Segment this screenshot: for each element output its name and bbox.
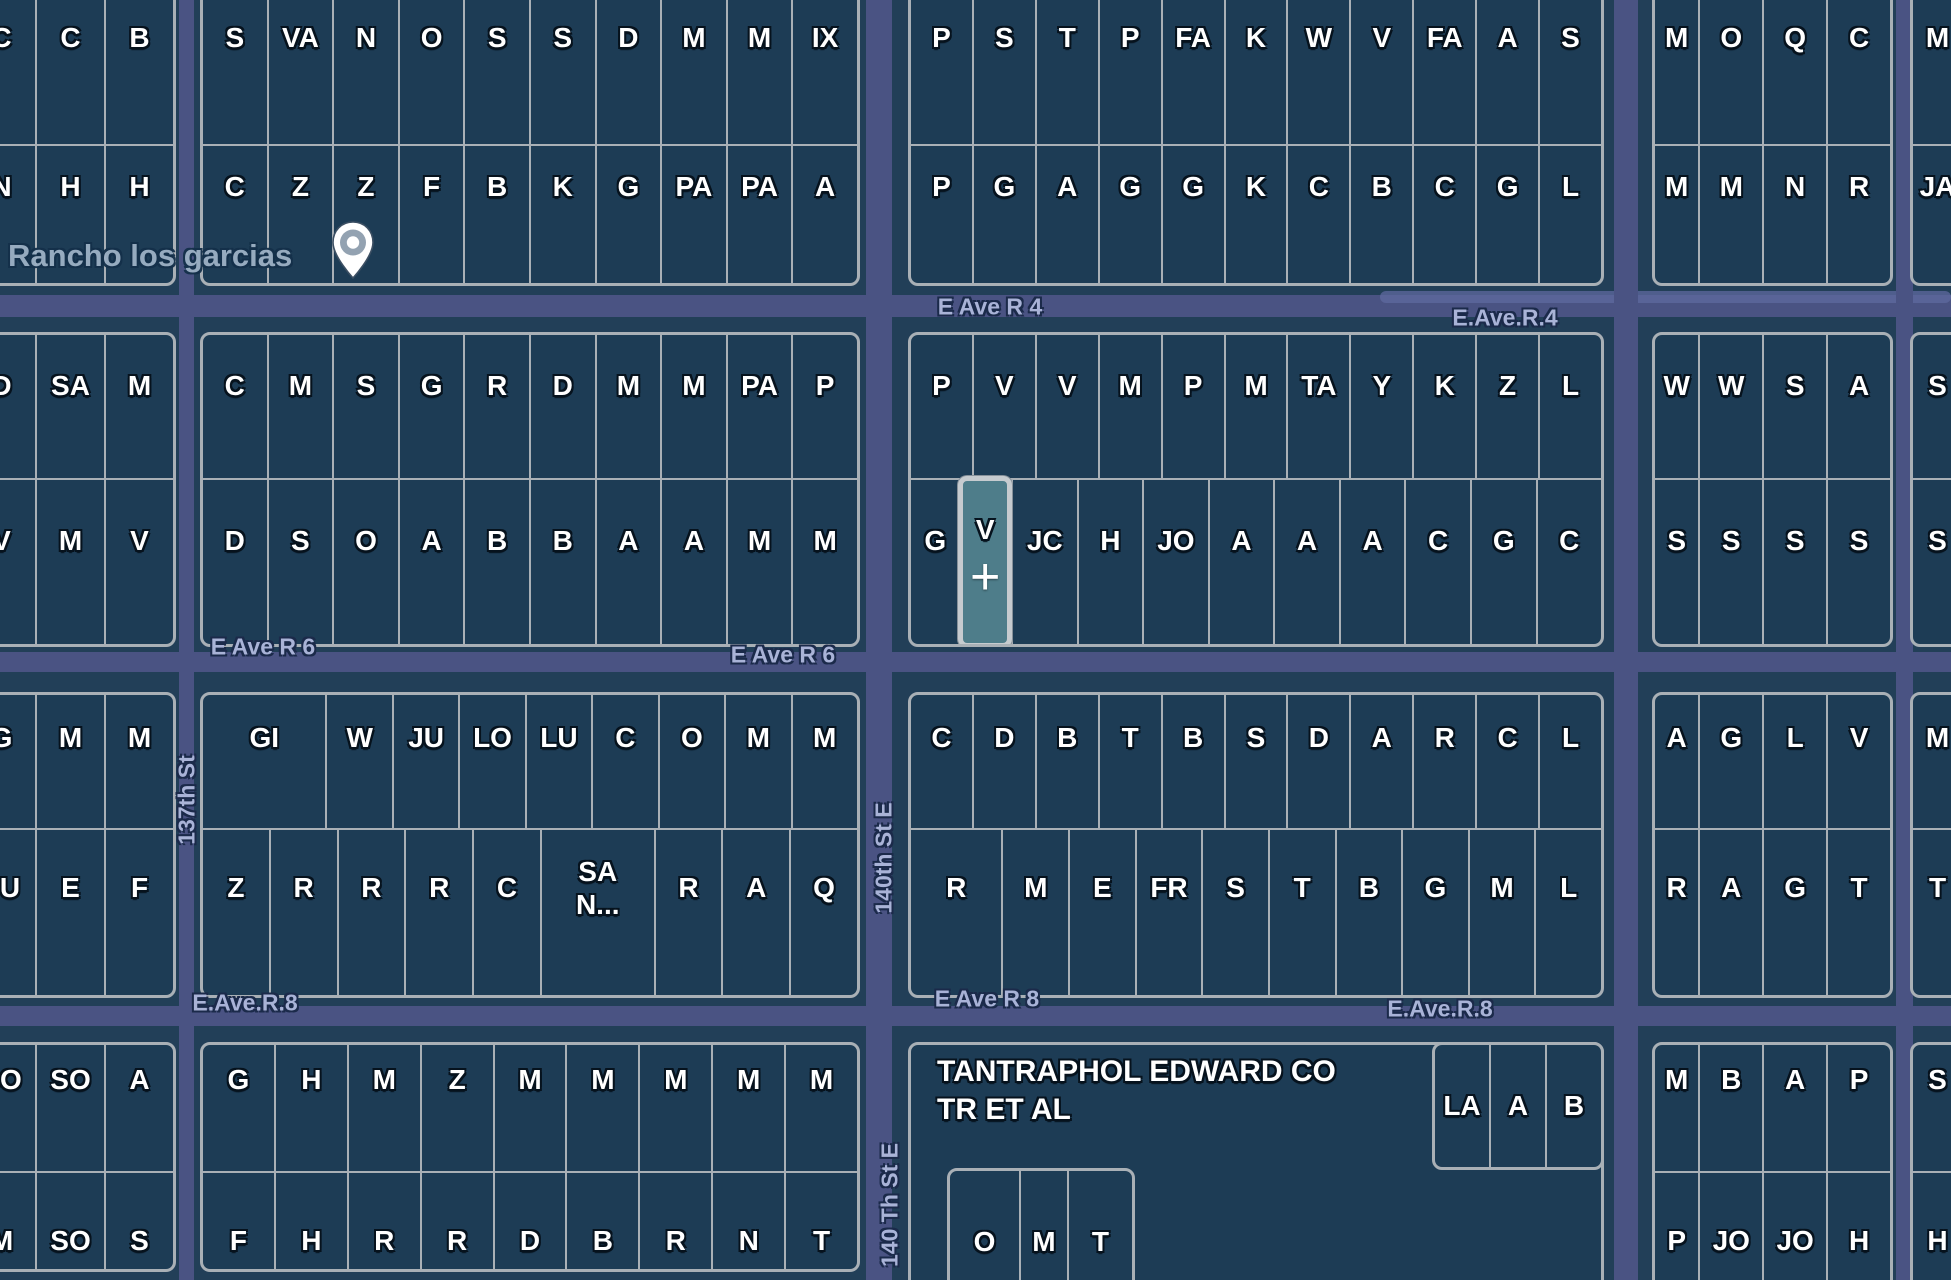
parcel[interactable]: M	[791, 695, 857, 828]
parcel[interactable]: Z	[203, 830, 269, 995]
parcel[interactable]: L	[1534, 830, 1601, 995]
parcel[interactable]: C	[0, 0, 35, 144]
parcel[interactable]: T	[784, 1173, 857, 1269]
parcel-owner-initials: A	[1721, 872, 1741, 904]
parcel[interactable]: M	[1655, 1045, 1698, 1171]
parcel[interactable]: M	[660, 0, 726, 144]
parcel[interactable]: M	[784, 1045, 857, 1171]
parcel[interactable]: F	[203, 1173, 274, 1269]
parcel[interactable]: M	[565, 1045, 638, 1171]
parcel[interactable]: A	[398, 480, 464, 644]
place-label: Rancho los garcias	[8, 238, 320, 274]
parcel[interactable]: R	[1412, 695, 1475, 828]
parcel[interactable]: H	[1913, 1173, 1951, 1280]
parcel-owner-initials: O	[681, 722, 703, 754]
parcel[interactable]: S	[104, 1173, 173, 1269]
parcel[interactable]: W	[1698, 335, 1762, 478]
parcel[interactable]: E	[1068, 830, 1135, 995]
parcel[interactable]: M	[711, 1045, 784, 1171]
parcel[interactable]: M	[1468, 830, 1535, 995]
parcel[interactable]: V	[1826, 695, 1890, 828]
parcel[interactable]: M	[35, 480, 104, 644]
parcel[interactable]: M	[726, 0, 792, 144]
parcel[interactable]: H	[1077, 480, 1143, 644]
parcel-owner-initials: M	[813, 525, 836, 557]
parcel-owner-initials: M	[1926, 722, 1949, 754]
parcel[interactable]: Y	[1349, 335, 1412, 478]
parcel-owner-initials: M	[1032, 1226, 1055, 1258]
parcel-owner-initials: B	[1183, 722, 1203, 754]
parcel[interactable]: R	[654, 830, 722, 995]
parcel-owner-initials: SO	[50, 1225, 90, 1257]
parcel-owner-initials: C	[60, 22, 80, 54]
parcel[interactable]: O	[658, 695, 724, 828]
parcel[interactable]: F	[104, 830, 173, 995]
parcel-block: WWSASSSS	[1652, 332, 1893, 647]
parcel[interactable]: C	[1404, 480, 1470, 644]
parcel[interactable]: C	[203, 335, 267, 478]
parcel-owner-initials: FA	[1427, 22, 1463, 54]
parcel[interactable]: B	[1335, 830, 1402, 995]
parcel[interactable]: S	[1762, 480, 1826, 644]
parcel[interactable]: M	[1019, 1171, 1067, 1280]
road-name-label: E Ave R 6	[731, 642, 835, 669]
parcel-owner-initials: P	[816, 370, 835, 402]
parcel-owner-initials: M	[289, 370, 312, 402]
parcel[interactable]: M	[1098, 335, 1161, 478]
parcel[interactable]: T	[1035, 0, 1098, 144]
parcel-row: ZRRRCSA N...RAQ	[203, 828, 857, 995]
parcel[interactable]: C	[591, 695, 657, 828]
parcel[interactable]: B	[463, 480, 529, 644]
parcel[interactable]: M	[104, 695, 173, 828]
parcel-owner-initials: G	[1119, 171, 1141, 203]
parcel-owner-initials: M	[518, 1064, 541, 1096]
parcel[interactable]: C	[1475, 695, 1538, 828]
road-name-label: E.Ave.R.8	[192, 990, 297, 1017]
parcel[interactable]: G	[1401, 830, 1468, 995]
parcel[interactable]: GI	[203, 695, 325, 828]
parcel-owner-initials: LO	[473, 722, 512, 754]
parcel[interactable]: S	[1201, 830, 1268, 995]
parcel[interactable]: S	[1913, 335, 1951, 478]
parcel[interactable]: T	[1268, 830, 1335, 995]
parcel-owner-initials: M	[0, 1225, 13, 1257]
parcel[interactable]: K	[1224, 0, 1287, 144]
parcel[interactable]: S	[1538, 0, 1601, 144]
parcel[interactable]: FU	[0, 830, 35, 995]
parcel-row: LAAB	[1435, 1045, 1601, 1167]
parcel[interactable]: R	[638, 1173, 711, 1269]
parcel[interactable]: L	[1762, 695, 1826, 828]
parcel-owner-initials: C	[1309, 171, 1329, 203]
parcel-owner-initials: A	[1667, 722, 1687, 754]
parcel-owner-initials: G	[1497, 171, 1519, 203]
parcel[interactable]: JC	[1011, 480, 1077, 644]
parcel[interactable]: G	[1098, 146, 1161, 283]
parcel[interactable]: V	[1035, 335, 1098, 478]
parcel[interactable]: M	[638, 1045, 711, 1171]
parcel[interactable]: A	[1208, 480, 1274, 644]
parcel[interactable]: G	[1762, 830, 1826, 995]
parcel[interactable]: M	[1913, 695, 1951, 828]
parcel[interactable]: B	[1698, 1045, 1762, 1171]
parcel[interactable]: K	[1412, 335, 1475, 478]
parcel[interactable]: A	[721, 830, 789, 995]
parcel[interactable]: D	[529, 335, 595, 478]
parcel[interactable]: B	[529, 480, 595, 644]
parcel-owner-initials: N	[1785, 171, 1805, 203]
parcel[interactable]: M	[1913, 0, 1951, 144]
parcel[interactable]: R	[404, 830, 472, 995]
parcel-owner-initials: C	[497, 872, 517, 904]
road	[1614, 0, 1638, 1280]
parcel[interactable]: LU	[525, 695, 591, 828]
parcel-owner-initials: JO	[1776, 1225, 1813, 1257]
parcel[interactable]: N	[1762, 146, 1826, 283]
parcel[interactable]: B	[463, 146, 529, 283]
parcel[interactable]: M	[104, 335, 173, 478]
parcel[interactable]: M	[1698, 146, 1762, 283]
parcel[interactable]: VA	[267, 0, 333, 144]
parcel[interactable]: P	[1098, 0, 1161, 144]
parcel-owner-initials: A	[746, 872, 766, 904]
parcel[interactable]: Z	[420, 1045, 493, 1171]
parcel-owner-initials: G	[617, 171, 639, 203]
parcel[interactable]: B	[104, 0, 173, 144]
parcel-owner-initials: M	[748, 525, 771, 557]
parcel[interactable]: JO	[1698, 1173, 1762, 1280]
parcel[interactable]: M	[35, 695, 104, 828]
parcel-owner-initials: F	[230, 1225, 247, 1257]
parcel-row: CCB	[0, 0, 173, 144]
parcel-block: OMT	[947, 1168, 1135, 1280]
parcel[interactable]: JA	[1913, 146, 1951, 283]
parcel[interactable]: A	[791, 146, 857, 283]
parcel[interactable]: P	[911, 335, 972, 478]
parcel[interactable]: O	[398, 0, 464, 144]
parcel[interactable]: G	[911, 480, 959, 644]
parcel-owner-initials: TA	[1301, 370, 1336, 402]
parcel-owner-initials: G	[228, 1064, 250, 1096]
parcel[interactable]: A	[1339, 480, 1405, 644]
parcel[interactable]: T	[1913, 830, 1951, 995]
pin-glyph	[329, 220, 377, 280]
parcel[interactable]: S	[1762, 335, 1826, 478]
parcel[interactable]: A	[1489, 1045, 1545, 1167]
parcel[interactable]: A	[1655, 695, 1698, 828]
parcel[interactable]: A	[104, 1045, 173, 1171]
parcel-owner-initials: LA	[1443, 1090, 1480, 1122]
parcel[interactable]: S	[1655, 480, 1698, 644]
parcel-owner-initials: H	[301, 1064, 321, 1096]
parcel[interactable]: S	[972, 0, 1035, 144]
parcel[interactable]: E	[35, 830, 104, 995]
parcel[interactable]: D	[972, 695, 1035, 828]
parcel[interactable]: C	[472, 830, 540, 995]
parcel[interactable]: G	[1698, 695, 1762, 828]
parcel[interactable]: R	[337, 830, 405, 995]
parcel[interactable]: S	[267, 480, 333, 644]
parcel-owner-initials: V	[976, 514, 995, 546]
parcel[interactable]: A	[660, 480, 726, 644]
parcel[interactable]: G	[0, 695, 35, 828]
parcel-owner-initials: A	[129, 1064, 149, 1096]
parcel[interactable]: M	[0, 1173, 35, 1269]
parcel-owner-initials: R	[1667, 872, 1687, 904]
parcel-owner-initials: W	[1718, 370, 1744, 402]
parcel[interactable]: P	[1161, 335, 1224, 478]
location-pin-icon[interactable]	[329, 220, 377, 280]
parcel[interactable]: V	[1349, 0, 1412, 144]
parcel-row: RMEFRSTBGML	[911, 828, 1601, 995]
parcel-owner-initials: B	[487, 171, 507, 203]
parcel[interactable]: F	[398, 146, 464, 283]
parcel[interactable]: M	[493, 1045, 566, 1171]
parcel[interactable]: G	[203, 1045, 274, 1171]
parcel-owner-initials: D	[553, 370, 573, 402]
parcel[interactable]: G	[972, 146, 1035, 283]
parcel[interactable]: M	[1224, 335, 1287, 478]
parcel-owner-initials: A	[1362, 525, 1382, 557]
parcel[interactable]: H	[1826, 1173, 1890, 1280]
parcel[interactable]: G	[1475, 146, 1538, 283]
parcel-owner-initials: M	[617, 370, 640, 402]
parcel[interactable]: S	[1224, 695, 1287, 828]
parcel[interactable]: M	[267, 335, 333, 478]
parcel-owner-initials: M	[1490, 872, 1513, 904]
parcel-block: MJA	[1910, 0, 1951, 286]
parcel[interactable]: H	[274, 1045, 347, 1171]
parcel[interactable]: M	[1655, 0, 1698, 144]
parcel[interactable]: IX	[791, 0, 857, 144]
parcel[interactable]: P	[911, 146, 972, 283]
parcel[interactable]: R	[1655, 830, 1698, 995]
parcel-owner-initials: C	[225, 171, 245, 203]
parcel[interactable]: A	[1762, 1045, 1826, 1171]
parcel[interactable]: M	[724, 695, 790, 828]
parcel[interactable]: M	[1655, 146, 1698, 283]
parcel-owner-initials: M	[1024, 872, 1047, 904]
parcel[interactable]: R	[463, 335, 529, 478]
parcel-owner-initials: R	[666, 1225, 686, 1257]
parcel-owner-initials: A	[421, 525, 441, 557]
parcel[interactable]: D	[203, 480, 267, 644]
parcel-owner-initials: W	[1306, 22, 1332, 54]
parcel-block: AGLVRAGT	[1652, 692, 1893, 998]
parcel-owner-initials: H	[60, 171, 80, 203]
parcel[interactable]: SO	[0, 1045, 35, 1171]
parcel-owner-initials: S	[1786, 525, 1805, 557]
parcel[interactable]: M	[660, 335, 726, 478]
parcel[interactable]: C	[35, 0, 104, 144]
parcel[interactable]: S	[332, 335, 398, 478]
parcel[interactable]: P	[1655, 1173, 1698, 1280]
parcel[interactable]: V	[104, 480, 173, 644]
parcel-owner-initials: M	[1244, 370, 1267, 402]
parcel[interactable]: L	[1538, 335, 1601, 478]
parcel[interactable]: N	[332, 0, 398, 144]
parcel-owner-initials: C	[0, 22, 12, 54]
parcel[interactable]: S	[463, 0, 529, 144]
parcel[interactable]: G	[398, 335, 464, 478]
road	[866, 0, 892, 1280]
parcel[interactable]: JU	[392, 695, 458, 828]
parcel[interactable]: SA	[35, 335, 104, 478]
parcel-owner-initials: T	[1851, 872, 1868, 904]
parcel[interactable]: W	[1286, 0, 1349, 144]
parcel-owner-initials: R	[429, 872, 449, 904]
parcel-row: AGLV	[1655, 695, 1890, 828]
parcel[interactable]: C	[911, 695, 972, 828]
parcel[interactable]: O	[1698, 0, 1762, 144]
parcel[interactable]: G	[595, 146, 661, 283]
parcel[interactable]: A	[1698, 830, 1762, 995]
parcel[interactable]: A	[1349, 695, 1412, 828]
parcel[interactable]: R	[269, 830, 337, 995]
parcel[interactable]: R	[347, 1173, 420, 1269]
parcel[interactable]: PA	[726, 146, 792, 283]
parcel-owner-initials: O	[421, 22, 443, 54]
parcel-owner-initials: G	[1784, 872, 1806, 904]
parcel[interactable]: Z	[1475, 335, 1538, 478]
parcel[interactable]: LA	[1435, 1045, 1489, 1167]
parcel-owner-initials: FR	[1150, 872, 1187, 904]
parcel[interactable]: SO	[35, 1173, 104, 1269]
selected-parcel[interactable]: V+	[958, 476, 1012, 647]
parcel[interactable]: R	[420, 1173, 493, 1269]
parcel[interactable]: B	[1161, 695, 1224, 828]
parcel-block: MT	[1910, 692, 1951, 998]
road-name-label: E Ave R 8	[935, 986, 1039, 1013]
parcel[interactable]: M	[347, 1045, 420, 1171]
parcel-owner-initials: Z	[227, 872, 244, 904]
parcel-owner-initials: S	[553, 22, 572, 54]
parcel-owner-initials: M	[1720, 171, 1743, 203]
parcel-owner-initials: A	[1849, 370, 1869, 402]
parcel[interactable]: R	[1826, 146, 1890, 283]
parcel[interactable]: G	[1470, 480, 1536, 644]
parcel-owner-initials: H	[1849, 1225, 1869, 1257]
parcel-owner-initials: B	[1359, 872, 1379, 904]
parcel-owner-initials: A	[618, 525, 638, 557]
parcel-row: VMV	[0, 478, 173, 644]
parcel[interactable]: K	[1224, 146, 1287, 283]
parcel-owner-initials: GI	[249, 722, 279, 754]
parcel[interactable]: S	[1913, 480, 1951, 644]
parcel[interactable]: L	[1538, 695, 1601, 828]
parcel-owner-initials: R	[1435, 722, 1455, 754]
parcel[interactable]: S	[1913, 1045, 1951, 1171]
road-name-label: E.Ave.R.8	[1387, 996, 1492, 1023]
parcel[interactable]: C	[1412, 146, 1475, 283]
parcel[interactable]: K	[529, 146, 595, 283]
parcel[interactable]: V	[0, 480, 35, 644]
parcel-owner-initials: G	[924, 525, 946, 557]
parcel-owner-initials: C	[931, 722, 951, 754]
parcel[interactable]: S	[529, 0, 595, 144]
parcel[interactable]: T	[1098, 695, 1161, 828]
parcel[interactable]: B	[565, 1173, 638, 1269]
parcel-row: GMM	[0, 695, 173, 828]
parcel[interactable]: P	[1826, 1045, 1890, 1171]
parcel[interactable]: D	[493, 1173, 566, 1269]
parcel[interactable]: D	[0, 335, 35, 478]
parcel[interactable]: B	[1035, 695, 1098, 828]
parcel[interactable]: D	[595, 0, 661, 144]
parcel[interactable]: A	[595, 480, 661, 644]
parcel[interactable]: B	[1349, 146, 1412, 283]
parcel[interactable]: C	[1536, 480, 1602, 644]
parcel-owner-initials: G	[1182, 171, 1204, 203]
parcel[interactable]: S	[1826, 480, 1890, 644]
parcel[interactable]: H	[274, 1173, 347, 1269]
parcel[interactable]: SO	[35, 1045, 104, 1171]
parcel[interactable]: M	[1001, 830, 1068, 995]
parcel[interactable]: FA	[1161, 0, 1224, 144]
parcel[interactable]: D	[1286, 695, 1349, 828]
parcel[interactable]: P	[791, 335, 857, 478]
road-name-label: E.Ave.R.4	[1452, 305, 1557, 332]
parcel[interactable]: T	[1067, 1171, 1132, 1280]
parcel[interactable]: M	[726, 480, 792, 644]
parcel-owner-initials: S	[1786, 370, 1805, 402]
parcel[interactable]: L	[1538, 146, 1601, 283]
parcel[interactable]: C	[1826, 0, 1890, 144]
parcel[interactable]: FR	[1135, 830, 1202, 995]
parcel[interactable]: N	[711, 1173, 784, 1269]
parcel-owner-initials: K	[553, 171, 573, 203]
parcel-owner-initials: Z	[292, 171, 309, 203]
parcel[interactable]: S	[1698, 480, 1762, 644]
parcel[interactable]: R	[911, 830, 1001, 995]
parcel-row: OMT	[950, 1171, 1132, 1280]
parcel-row: PGAGGKCBCGL	[911, 144, 1601, 283]
parcel-owner-initials: M	[682, 22, 705, 54]
parcel[interactable]: P	[911, 0, 972, 144]
parcel[interactable]: TA	[1286, 335, 1349, 478]
parcel[interactable]: SA N...	[540, 830, 654, 995]
parcel[interactable]: A	[1475, 0, 1538, 144]
parcel[interactable]: M	[791, 480, 857, 644]
parcel[interactable]: O	[332, 480, 398, 644]
parcel[interactable]: PA	[660, 146, 726, 283]
parcel-block: SS	[1910, 332, 1951, 647]
parcel[interactable]: W	[1655, 335, 1698, 478]
parcel[interactable]: A	[1273, 480, 1339, 644]
parcel[interactable]: M	[595, 335, 661, 478]
parcel[interactable]: T	[1826, 830, 1890, 995]
parcel[interactable]: C	[1286, 146, 1349, 283]
parcel[interactable]: Q	[789, 830, 857, 995]
parcel[interactable]: B	[1545, 1045, 1601, 1167]
parcel[interactable]: V	[972, 335, 1035, 478]
parcel[interactable]: LO	[458, 695, 524, 828]
parcel[interactable]: PA	[726, 335, 792, 478]
parcel-owner-initials: R	[361, 872, 381, 904]
map-canvas[interactable]: CCBNHHSVANOSSDMMIXCZZFBKGPAPAAPSTPFAKWVF…	[0, 0, 1951, 1280]
parcel[interactable]: S	[203, 0, 267, 144]
parcel[interactable]: FA	[1412, 0, 1475, 144]
parcel[interactable]: A	[1035, 146, 1098, 283]
parcel[interactable]: W	[325, 695, 391, 828]
parcel[interactable]: JO	[1762, 1173, 1826, 1280]
parcel[interactable]: JO	[1142, 480, 1208, 644]
parcel[interactable]: G	[1161, 146, 1224, 283]
parcel[interactable]: Q	[1762, 0, 1826, 144]
parcel[interactable]: O	[950, 1171, 1019, 1280]
parcel[interactable]: A	[1826, 335, 1890, 478]
